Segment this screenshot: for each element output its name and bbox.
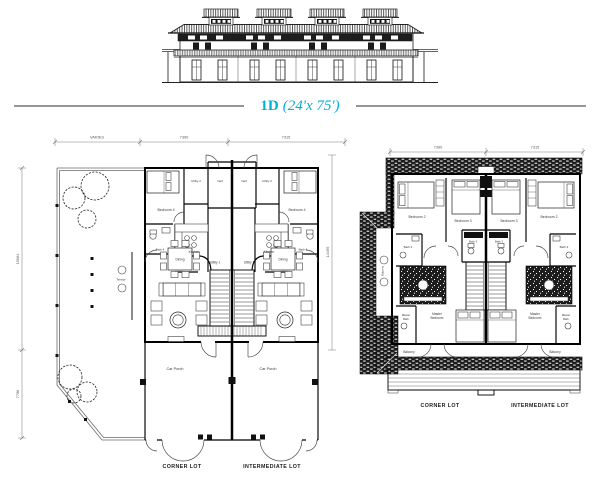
label-utility2-left: Utility 2 xyxy=(191,179,201,183)
front-elevation-drawing xyxy=(160,4,440,90)
title-size: (24'x 75') xyxy=(283,98,340,114)
gf-label-terrace: Terrace xyxy=(116,278,126,282)
ff-dimensions: 7390 7315 xyxy=(388,145,585,157)
label-bath4-left: Bath 4 xyxy=(156,248,165,252)
label-bath3-left: Bath 3 xyxy=(469,240,478,244)
label-bedroom3-right: Bedroom 3 xyxy=(500,219,517,223)
label-utility1-left: Utility 1 xyxy=(210,261,221,265)
label-balcony-left: Balcony xyxy=(403,350,415,354)
first-floor-plan: 7390 7315 Balcony xyxy=(352,138,600,416)
label-bath2-right: Bath 2 xyxy=(560,245,569,249)
label-master-bath-left: MasterBath xyxy=(402,313,411,321)
label-bedroom2-right: Bedroom 2 xyxy=(540,215,557,219)
ff-intermediate-lot-label: INTERMEDIATE LOT xyxy=(511,403,569,409)
label-master-bedroom-left: MasterBedroom xyxy=(431,312,444,320)
title-divider-left xyxy=(14,105,244,107)
gf-dim-15064: 15064 xyxy=(15,253,20,265)
label-bath3-right: Bath 3 xyxy=(495,240,504,244)
label-bedroom4-left: Bedroom 4 xyxy=(157,208,174,212)
label-bath4-right: Bath 4 xyxy=(299,248,308,252)
gf-walls xyxy=(145,160,318,440)
ff-carporch-roof xyxy=(388,370,580,395)
gf-dim-7796: 7796 xyxy=(15,390,20,399)
gf-dim-7390: 7390 xyxy=(180,135,189,140)
title-code: 1D xyxy=(260,98,278,114)
label-bath2-left: Bath 2 xyxy=(404,245,413,249)
label-bedroom2-left: Bedroom 2 xyxy=(408,215,425,219)
tree-icons-bottom xyxy=(58,365,97,403)
title-divider-right xyxy=(356,105,586,107)
ff-side-balcony-label: Balcony xyxy=(381,265,385,276)
gf-intermediate-lot-label: INTERMEDIATE LOT xyxy=(243,464,301,470)
label-kitchen-right: Kitchen xyxy=(264,250,275,254)
gf-dim-14495: 14495 xyxy=(325,247,330,258)
page-title: 1D(24'x 75') xyxy=(260,98,339,115)
gf-porch-details xyxy=(140,337,318,440)
gf-terrace: Terrace xyxy=(91,252,133,320)
label-yard-right: Yard xyxy=(241,179,247,183)
label-yard-left: Yard xyxy=(217,179,223,183)
gf-corner-lot-label: CORNER LOT xyxy=(162,464,201,470)
label-balcony-right: Balcony xyxy=(549,350,561,354)
jack-roofs xyxy=(202,9,399,25)
label-master-bedroom-right: MasterBedroom xyxy=(529,312,542,320)
title-row: 1D(24'x 75') xyxy=(14,96,586,116)
label-dining-left: Dining xyxy=(175,258,184,262)
label-utility1-right: Utility 1 xyxy=(244,261,255,265)
ground-floor-plan: VARIES 7390 7315 15064 7796 14495 xyxy=(10,124,382,478)
ff-dim-7315: 7315 xyxy=(531,145,540,150)
main-roof xyxy=(168,25,424,34)
gf-dim-7315: 7315 xyxy=(282,135,291,140)
label-bedroom4-right: Bedroom 4 xyxy=(288,208,305,212)
label-utility2-right: Utility 2 xyxy=(262,179,272,183)
tree-icons-top xyxy=(63,172,109,228)
ff-dim-7390: 7390 xyxy=(434,145,443,150)
label-carporch-right: Car Porch xyxy=(259,367,276,371)
mid-awning-roof xyxy=(174,50,418,58)
label-kitchen-left: Kitchen xyxy=(189,250,200,254)
upper-floor-band xyxy=(178,34,412,50)
label-carporch-left: Car Porch xyxy=(166,367,183,371)
gf-dim-varies: VARIES xyxy=(90,135,104,140)
label-dining-right: Dining xyxy=(278,258,287,262)
ff-side-balcony: Balcony xyxy=(380,256,388,286)
label-master-bath-right: MasterBath xyxy=(562,313,571,321)
ff-corner-lot-label: CORNER LOT xyxy=(420,403,459,409)
label-bedroom3-left: Bedroom 3 xyxy=(454,219,471,223)
floor-plan-sheet: 1D(24'x 75') VARIES 7390 7315 15064 7796… xyxy=(0,0,600,481)
